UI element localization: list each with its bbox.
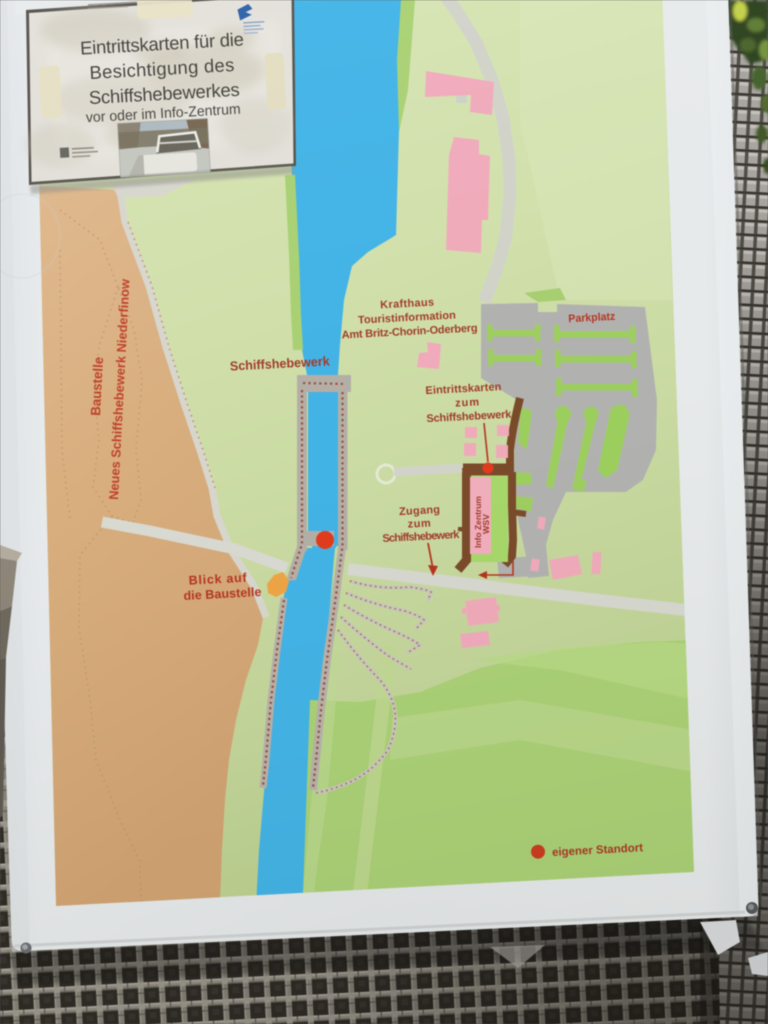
svg-text:Baustelle: Baustelle xyxy=(88,356,106,416)
svg-text:Zugang: Zugang xyxy=(399,504,441,518)
svg-text:zum: zum xyxy=(407,517,431,530)
svg-text:zum: zum xyxy=(455,396,480,409)
svg-text:WSV: WSV xyxy=(482,513,491,534)
svg-text:Parkplatz: Parkplatz xyxy=(568,311,616,325)
